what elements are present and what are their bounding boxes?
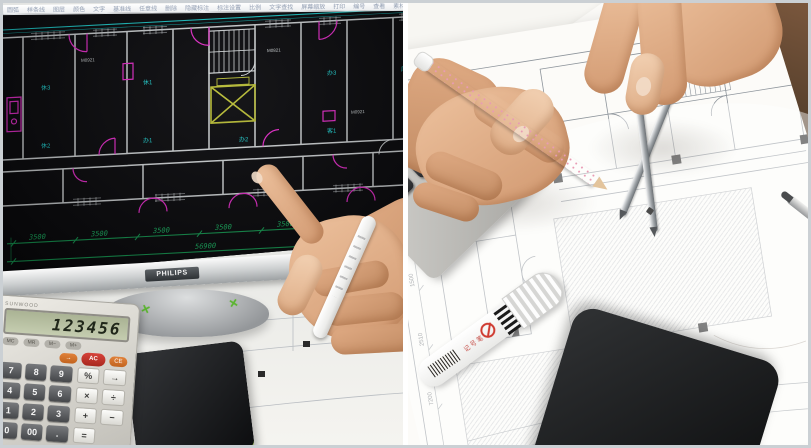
calculator-corner-key: 1 <box>408 168 415 209</box>
svg-text:M0921: M0921 <box>81 57 95 63</box>
cad-toolbar-item: 图层 <box>53 4 65 13</box>
cad-toolbar-item: 屏幕缩放 <box>301 3 325 11</box>
calculator-number-key: 2 <box>22 403 44 420</box>
svg-text:M0821: M0821 <box>267 47 281 53</box>
calculator-number-key: 0 <box>3 421 18 438</box>
philips-logo: PHILIPS <box>145 267 200 282</box>
calculator-memory-key: M− <box>44 340 61 349</box>
calculator-number-key: 9 <box>50 365 72 382</box>
calculator-operator-key: % <box>76 367 100 385</box>
cad-screen: 休3 休2 休1 办1 办2 办3 客1 库 M0921 M0821 M0921 <box>3 10 403 278</box>
calculator-operator-key: → <box>103 369 127 387</box>
left-photo-cad-monitor-scene: 休3 休2 休1 办1 办2 办3 客1 库 M0921 M0821 M0921 <box>3 3 403 445</box>
photo-collage: 休3 休2 休1 办1 办2 办3 客1 库 M0921 M0821 M0921 <box>0 0 811 448</box>
svg-text:3500: 3500 <box>214 223 232 232</box>
photo-divider <box>403 3 408 445</box>
bezel-sticker: Q.B 拉图热线 <box>346 239 403 275</box>
cad-toolbar-item: 基准线 <box>113 4 131 13</box>
calculator-operator-keys: %→×÷+−= <box>72 367 127 445</box>
svg-text:56900: 56900 <box>195 242 216 251</box>
calculator-number-key: . <box>46 425 68 442</box>
calculator-keypad: 789456123000. %→×÷+−= <box>3 362 127 445</box>
calculator-number-keys: 789456123000. <box>3 362 72 443</box>
hand-shadow <box>588 118 738 178</box>
ac-key: AC <box>81 352 106 367</box>
calculator-number-key: 7 <box>3 362 22 379</box>
cad-toolbar-item: 删除 <box>165 3 177 12</box>
cad-toolbar-item: 颜色 <box>73 4 85 13</box>
cad-toolbar-item: 圆弧 <box>7 5 19 14</box>
svg-text:3500: 3500 <box>152 226 170 235</box>
calculator-memory-key: M+ <box>65 341 82 350</box>
svg-text:3500: 3500 <box>90 230 108 239</box>
cad-toolbar-item: 查看 <box>373 3 385 10</box>
backspace-key: → <box>59 352 78 363</box>
cad-toolbar-item: 打印 <box>333 3 345 11</box>
cad-toolbar-item: 标注设置 <box>217 3 241 12</box>
cad-toolbar-item: 文字 <box>93 4 105 13</box>
calculator-corner-keys: 00014 <box>408 83 479 209</box>
calculator-number-key: 1 <box>3 402 19 419</box>
calculator-operator-key: − <box>100 409 124 427</box>
calculator-memory-key: MR <box>23 338 40 347</box>
calculator-display-value: 123456 <box>51 315 122 339</box>
desk-calculator: SUNWOOD 123456 MCMRM−M+ → AC CE 78945612… <box>3 294 140 445</box>
calculator-number-key: 5 <box>24 383 46 400</box>
calculator-memory-key: MC <box>3 337 19 346</box>
ce-key: CE <box>109 356 128 367</box>
cad-toolbar-item: 文字查找 <box>269 3 293 11</box>
calculator-corner-key: 4 <box>408 138 446 179</box>
cad-toolbar-item: 任意线 <box>139 3 157 12</box>
calculator-operator-key: × <box>75 387 99 405</box>
compass-hinge <box>644 75 658 89</box>
smartphone-on-desk <box>125 340 256 445</box>
calculator-number-key: 6 <box>49 385 71 402</box>
cad-toolbar-item: 素材 <box>393 3 403 10</box>
right-photo-drafting-scene: 9000 30700 2000 1500 2510 7200 00014 记号笔 <box>408 3 808 445</box>
calculator-number-key: 4 <box>3 382 21 399</box>
blueprint-stairs <box>669 45 730 98</box>
calculator-number-key: 8 <box>25 363 47 380</box>
marker-barcode <box>427 349 461 378</box>
cad-floor-plan: 休3 休2 休1 办1 办2 办3 客1 库 M0921 M0821 M0921 <box>3 3 403 272</box>
calculator-operator-key: ÷ <box>102 389 126 407</box>
calculator-number-key: 3 <box>47 405 69 422</box>
svg-text:3500: 3500 <box>276 220 294 229</box>
calculator-operator-key: = <box>72 427 96 445</box>
cad-toolbar-item: 隐藏标注 <box>185 3 209 12</box>
cad-toolbar-item: 样条线 <box>27 5 45 14</box>
calculator-operator-key: + <box>74 407 98 425</box>
svg-text:3500: 3500 <box>28 233 46 242</box>
cad-toolbar-item: 编号 <box>353 3 365 10</box>
calculator-number-key: 00 <box>21 423 43 440</box>
cad-toolbar-item: 比例 <box>249 3 261 12</box>
svg-text:7800: 7800 <box>355 216 372 225</box>
svg-text:M0921: M0921 <box>351 109 365 115</box>
